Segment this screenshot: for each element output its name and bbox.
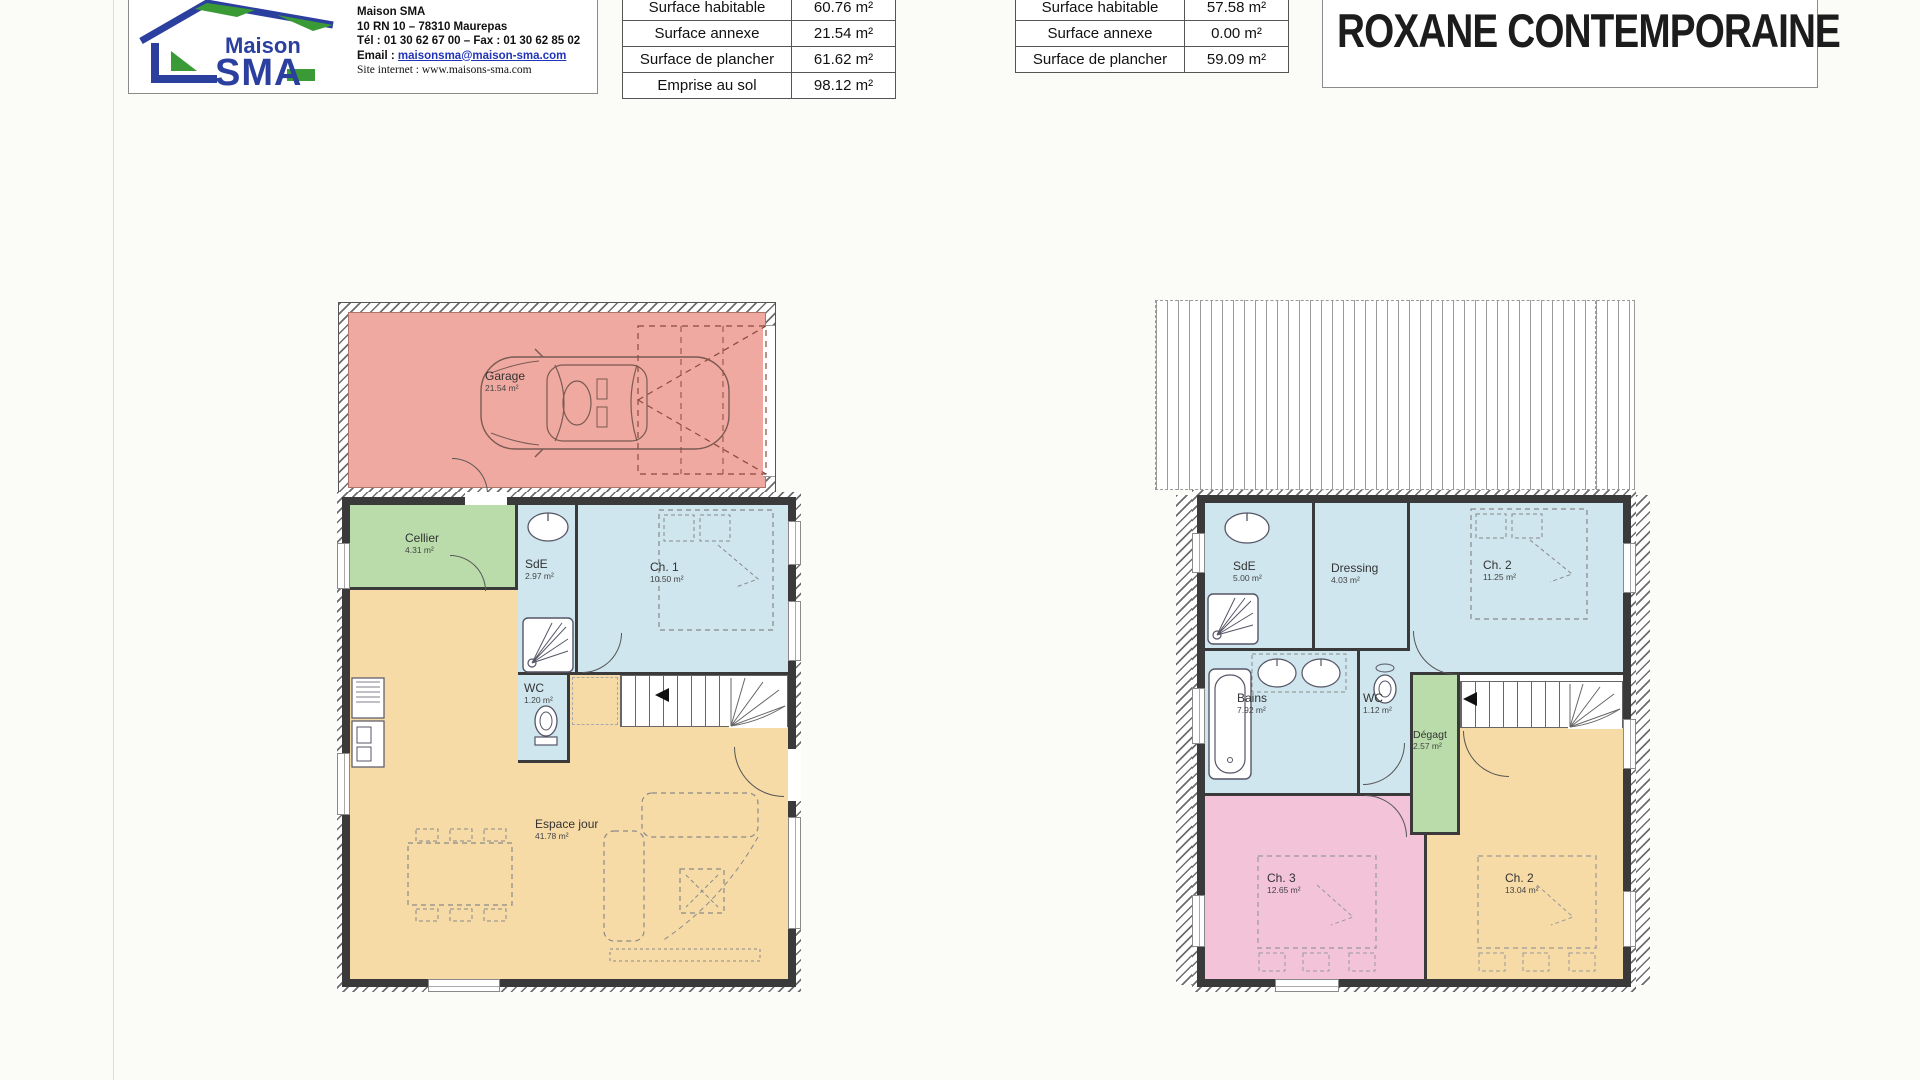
table-row: Surface annexe 21.54 m² — [623, 21, 895, 47]
row-value: 98.12 m² — [792, 73, 895, 98]
bed-icon — [1477, 855, 1597, 973]
sink-icon — [1223, 511, 1271, 545]
room-cellier — [350, 505, 518, 590]
window — [428, 979, 500, 992]
roof-slope-strip-left — [1176, 495, 1192, 985]
row-value: 57.58 m² — [1185, 0, 1288, 20]
stairs-floor — [1460, 681, 1623, 728]
company-phone: Tél : 01 30 62 67 00 – Fax : 01 30 62 85… — [357, 34, 592, 49]
company-address-block: Maison SMA 10 RN 10 – 78310 Maurepas Tél… — [357, 5, 592, 78]
double-sink-icon — [1251, 653, 1347, 693]
shower-icon — [1207, 593, 1259, 645]
roof-dashed-line — [1595, 301, 1596, 489]
stairs-headroom-dashed — [572, 677, 618, 725]
upper-house: SdE 5.00 m² Dressing 4.03 m² Ch. 2 11.25… — [1197, 495, 1631, 987]
email-link: maisonsma@maison-sma.com — [398, 50, 566, 62]
bed-icon — [658, 509, 774, 631]
company-email-line: Email : maisonsma@maison-sma.com — [357, 49, 592, 64]
stairs-winder-lines — [729, 676, 787, 728]
table-row: Surface habitable 57.58 m² — [1016, 0, 1288, 21]
window — [788, 521, 801, 565]
window — [1192, 533, 1205, 573]
bed-icon — [1470, 508, 1588, 620]
window — [337, 543, 350, 589]
window — [1623, 543, 1636, 593]
surface-table-floor: Surface habitable 57.58 m² Surface annex… — [1015, 0, 1289, 73]
bed-icon — [1257, 855, 1377, 973]
sink-icon — [526, 511, 570, 543]
window — [1275, 979, 1339, 992]
table-row: Surface de plancher 59.09 m² — [1016, 47, 1288, 72]
sofa-icon — [602, 791, 782, 971]
row-label: Surface habitable — [623, 0, 792, 20]
row-value: 60.76 m² — [792, 0, 895, 20]
scan-edge-line — [113, 0, 114, 1080]
roof-slope-strip-right — [1636, 495, 1650, 985]
stairs-ground — [620, 675, 788, 727]
shower-icon — [522, 617, 574, 673]
row-label: Surface de plancher — [1016, 47, 1185, 72]
window — [337, 753, 350, 815]
row-value: 59.09 m² — [1185, 47, 1288, 72]
garage-door-swing-lines — [637, 325, 767, 475]
svg-text:SMA: SMA — [215, 52, 302, 87]
company-logo-box: Maison SMA Maison SMA 10 RN 10 – 78310 M… — [128, 0, 598, 94]
roof-hatching — [1155, 300, 1635, 490]
model-title: ROXANE CONTEMPORAINE — [1337, 5, 1840, 59]
stairs-direction-arrow-icon — [655, 688, 669, 702]
window — [1623, 719, 1636, 769]
scanned-floor-plan-page: Maison SMA Maison SMA 10 RN 10 – 78310 M… — [0, 0, 1920, 1080]
ground-floor-plan: Garage 21.54 m² — [332, 300, 802, 992]
toilet-icon — [1371, 663, 1399, 709]
upper-floor-plan: SdE 5.00 m² Dressing 4.03 m² Ch. 2 11.25… — [1150, 300, 1650, 992]
room-garage: Garage 21.54 m² — [338, 302, 776, 498]
kitchen-counter-icon — [351, 677, 385, 769]
entry-door-gap — [788, 749, 801, 801]
website-label: Site internet : — [357, 64, 419, 76]
table-row: Emprise au sol 98.12 m² — [623, 73, 895, 98]
toilet-icon — [532, 703, 560, 747]
garage-door-gap — [465, 492, 507, 505]
row-value: 21.54 m² — [792, 21, 895, 46]
garage-interior — [348, 312, 766, 488]
row-label: Surface de plancher — [623, 47, 792, 72]
email-label: Email : — [357, 50, 395, 62]
stairs-direction-arrow-icon — [1463, 692, 1477, 706]
company-name: Maison SMA — [357, 5, 592, 20]
website-value: www.maisons-sma.com — [422, 64, 532, 76]
row-label: Surface annexe — [1016, 21, 1185, 46]
company-website-line: Site internet : www.maisons-sma.com — [357, 63, 592, 78]
row-value: 0.00 m² — [1185, 21, 1288, 46]
stairs-winder-lines — [1568, 682, 1622, 729]
company-street: 10 RN 10 – 78310 Maurepas — [357, 20, 592, 35]
window — [1623, 891, 1636, 947]
window — [1192, 688, 1205, 744]
model-title-box: ROXANE CONTEMPORAINE — [1322, 0, 1818, 88]
ground-house-shell: Cellier 4.31 m² SdE 2.97 m² Ch. 1 10.50 … — [337, 492, 801, 992]
maison-sma-logo-icon: Maison SMA — [137, 0, 342, 87]
table-row: Surface habitable 60.76 m² — [623, 0, 895, 21]
row-label: Surface habitable — [1016, 0, 1185, 20]
window — [1192, 895, 1205, 947]
room-degagement — [1410, 675, 1460, 835]
table-row: Surface de plancher 61.62 m² — [623, 47, 895, 73]
surface-table-ground: Surface habitable 60.76 m² Surface annex… — [622, 0, 896, 99]
bay-window — [788, 817, 801, 929]
window — [788, 601, 801, 661]
table-row: Surface annexe 0.00 m² — [1016, 21, 1288, 47]
bathtub-icon — [1208, 668, 1252, 780]
row-label: Surface annexe — [623, 21, 792, 46]
room-dressing — [1315, 503, 1410, 648]
upper-house-shell: SdE 5.00 m² Dressing 4.03 m² Ch. 2 11.25… — [1192, 490, 1636, 992]
dining-table-icon — [394, 827, 526, 923]
ground-house: Cellier 4.31 m² SdE 2.97 m² Ch. 1 10.50 … — [342, 497, 796, 987]
row-value: 61.62 m² — [792, 47, 895, 72]
row-label: Emprise au sol — [623, 73, 792, 98]
